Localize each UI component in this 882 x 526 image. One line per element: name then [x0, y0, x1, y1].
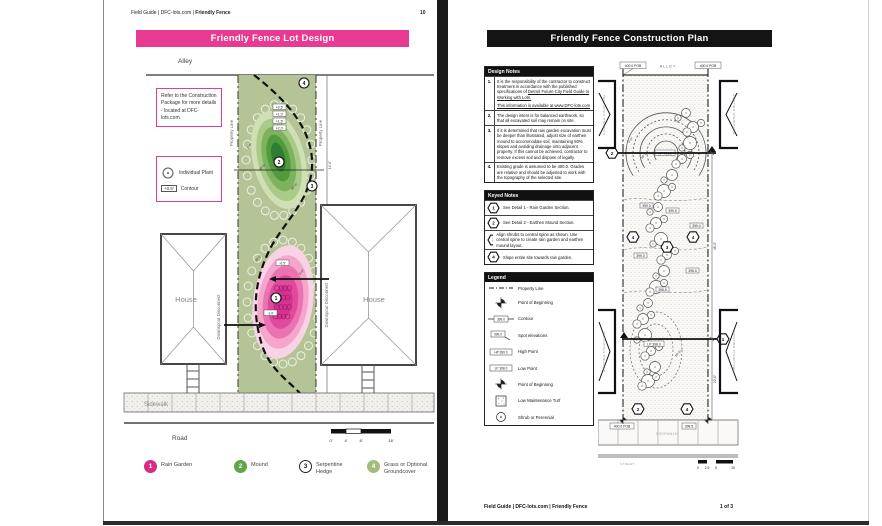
svg-text:400.0 POB: 400.0 POB — [614, 424, 631, 428]
existing-structure-label: EXISTING STRUCTURE — [732, 331, 736, 372]
legend-item-serpentine-hedge: 3 Serpentine Hedge — [299, 460, 352, 476]
legend-item-mound: 2 Mound — [234, 460, 285, 473]
individual-plant-icon — [161, 166, 175, 180]
legend-row-point-of-beginning-2: Point of Beginning — [485, 376, 593, 392]
svg-text:1: 1 — [275, 296, 278, 302]
svg-text:2: 2 — [611, 151, 614, 156]
page-lot-design: Field Guide | DFC-lots.com | Friendly Fe… — [103, 0, 437, 521]
dfc-lots-link[interactable]: This information is available at www.DFC… — [497, 103, 591, 108]
legend-badge: 1 — [144, 460, 157, 473]
marker-rain-garden: 1 — [271, 293, 281, 303]
hex-marker-4b: 4 — [687, 232, 699, 242]
legend-row-spot-elevations: 399.0 Spot elevations — [485, 327, 593, 343]
svg-text:10: 10 — [731, 466, 735, 470]
svg-text:1: 1 — [722, 337, 725, 342]
low-maintenance-turf-icon — [488, 395, 514, 407]
leader-line — [623, 69, 633, 76]
svg-text:2: 2 — [278, 160, 281, 166]
svg-text:398.5: 398.5 — [685, 424, 694, 428]
svg-text:398.5: 398.5 — [658, 288, 667, 292]
hex-marker-4c: 4 — [681, 404, 693, 414]
design-note: 1. It is the responsibility of the contr… — [485, 76, 593, 110]
footer-page-number: 1 of 3 — [720, 504, 733, 510]
svg-text:22'-0": 22'-0" — [713, 375, 717, 383]
low-point-icon: LP 398.0 — [488, 362, 514, 374]
svg-text:399.0: 399.0 — [636, 254, 645, 258]
svg-text:+1.0': +1.0' — [276, 112, 284, 116]
legend-row-contour: 399.0 Contour — [485, 311, 593, 327]
scale-bar: 0' 4' 8' 16' — [330, 429, 394, 443]
hex-marker-2: 2 — [606, 148, 618, 158]
keyed-note-hex-icon: 1 — [487, 202, 500, 214]
svg-text:2.5: 2.5 — [705, 466, 710, 470]
shrub-icon — [488, 411, 514, 423]
marker-mound: 2 — [274, 157, 284, 167]
contour-icon: 399.0 — [488, 313, 514, 325]
svg-text:+0.5': +0.5' — [276, 105, 284, 109]
keyed-note-hex-icon: 4 — [487, 251, 500, 263]
alley-label: Alley — [178, 58, 193, 65]
page-number: 10 — [420, 10, 426, 16]
page-construction-plan: Friendly Fence Construction Plan Design … — [448, 0, 869, 521]
svg-text:LP 398.0: LP 398.0 — [647, 342, 661, 346]
street-band — [598, 454, 738, 458]
svg-text:4: 4 — [692, 235, 695, 240]
keyed-note: 3 Align shrubs to central spine as shown… — [485, 230, 593, 249]
svg-text:1: 1 — [492, 206, 495, 211]
key-plant-label: Individual Plant — [179, 170, 213, 176]
svg-text:4: 4 — [492, 255, 495, 260]
key-individual-plant: Individual Plant — [161, 166, 217, 180]
downspout-label: Downspout Disconnect — [324, 282, 329, 328]
svg-text:400.0 POB: 400.0 POB — [625, 64, 642, 68]
legend-row-point-of-beginning: Point of Beginning — [485, 294, 593, 310]
legend-badge: 2 — [234, 460, 247, 473]
keyed-note: 2 See Detail 2 - Earthen Mound Section. — [485, 215, 593, 230]
keyed-note: 1 See Detail 1 - Rain Garden Section. — [485, 200, 593, 215]
svg-text:399.5: 399.5 — [642, 204, 651, 208]
svg-text:-0.5': -0.5' — [279, 261, 286, 265]
svg-text:LP 398.0: LP 398.0 — [495, 367, 508, 371]
key-contour-label: Contour — [181, 186, 199, 192]
svg-text:48'-0": 48'-0" — [713, 242, 717, 250]
hex-marker-4: 4 — [627, 232, 639, 242]
downspout-label: Downspout Disconnect — [216, 294, 221, 340]
construction-plan-drawing: 400.0 POB 400.0 POB ALLEY — [598, 55, 828, 475]
contour-tag-icon: +0.5' — [161, 185, 177, 192]
keyed-notes-header: Keyed Notes — [485, 191, 593, 200]
property-line-label: Property Line — [229, 119, 234, 146]
existing-structure-label: EXISTING STRUCTURE — [602, 331, 606, 372]
legend-box: Legend Property Line Point of Beginning … — [484, 272, 594, 426]
design-note: 2. The design intent is for balanced ear… — [485, 110, 593, 125]
page-gutter — [437, 0, 448, 521]
hex-marker-1: 1 — [717, 334, 729, 344]
svg-text:3: 3 — [311, 184, 314, 190]
street-label: STREET — [620, 462, 635, 466]
property-line-icon — [488, 284, 514, 292]
walkway-right — [362, 365, 374, 393]
svg-text:+2.0': +2.0' — [276, 126, 284, 130]
svg-text:398.5: 398.5 — [688, 269, 697, 273]
page-title: Friendly Fence Construction Plan — [487, 30, 772, 47]
legend-row-property-line: Property Line — [485, 282, 593, 294]
legend-row-low-point: LP 398.0 Low Point — [485, 360, 593, 376]
spot-elevation-icon: 399.0 — [488, 329, 514, 341]
page-title: Friendly Fence Lot Design — [136, 30, 409, 47]
sidewalk-label: Sidewalk — [144, 402, 169, 408]
point-of-beginning-icon — [488, 378, 514, 390]
svg-text:3: 3 — [492, 238, 493, 243]
keyed-note-hex-icon: 3 — [487, 234, 493, 246]
plan-key-box: Individual Plant +0.5' Contour — [156, 156, 222, 202]
svg-text:4: 4 — [632, 235, 635, 240]
svg-text:HP 399.0: HP 399.0 — [494, 350, 507, 354]
svg-text:0': 0' — [330, 438, 333, 443]
page-bottom-shadow — [103, 521, 869, 525]
svg-text:4': 4' — [345, 438, 348, 443]
svg-text:5: 5 — [715, 466, 717, 470]
svg-text:399.0: 399.0 — [494, 333, 502, 337]
sidewalk-label: SIDEWALK — [656, 432, 678, 436]
design-notes-header: Design Notes — [485, 67, 593, 76]
legend-row-high-point: HP 399.0 High Point — [485, 344, 593, 360]
scale-bar: 0 2.5 5 10 — [697, 460, 735, 470]
key-contour: +0.5' Contour — [161, 185, 217, 192]
svg-text:8': 8' — [360, 438, 363, 443]
svg-text:4: 4 — [686, 407, 689, 412]
keyed-note-hex-icon: 2 — [487, 217, 500, 229]
road-label: Road — [172, 435, 188, 442]
legend-header: Legend — [485, 273, 593, 282]
dimension-right: 48'-0" 22'-0" — [710, 151, 717, 422]
legend-badge: 3 — [299, 460, 312, 473]
design-note: 3. If it is determined that rain garden … — [485, 125, 593, 162]
footer-breadcrumb: Field Guide | DFC-lots.com | Friendly Fe… — [484, 504, 587, 510]
keyed-notes-box: Keyed Notes 1 See Detail 1 - Rain Garden… — [484, 190, 594, 265]
dim-label: 14'-0" — [328, 161, 332, 169]
sidewalk — [124, 393, 434, 412]
design-note: 4. Existing grade is assumed to be 400.0… — [485, 162, 593, 182]
svg-text:2: 2 — [637, 407, 640, 412]
legend-item-rain-garden: 1 Rain Garden — [144, 460, 205, 473]
house-label: House — [175, 295, 197, 304]
existing-structure-label: EXISTING STRUCTURE — [602, 94, 606, 135]
point-of-beginning-icon — [488, 297, 514, 309]
design-notes-box: Design Notes 1. It is the responsibility… — [484, 66, 594, 183]
svg-text:399.5: 399.5 — [668, 209, 677, 213]
svg-text:-1.0': -1.0' — [267, 311, 274, 315]
hex-marker-3: 3 — [661, 242, 673, 252]
existing-structure-label: EXISTING STRUCTURE — [732, 94, 736, 135]
svg-text:3: 3 — [666, 245, 669, 250]
hex-marker-2b: 2 — [632, 404, 644, 414]
svg-text:2: 2 — [492, 221, 495, 226]
house-label: House — [363, 295, 385, 304]
svg-text:400.0 POB: 400.0 POB — [700, 64, 717, 68]
svg-text:0: 0 — [697, 466, 699, 470]
svg-text:4: 4 — [303, 81, 306, 87]
high-point-icon: HP 399.0 — [488, 346, 514, 358]
property-line-label: Property Line — [318, 119, 323, 146]
house-right: House Downspout Disconnect — [321, 205, 416, 365]
svg-text:16': 16' — [388, 438, 393, 443]
legend-item-grass: 4 Grass or Optional Groundcover — [367, 460, 436, 476]
walkway-left — [187, 364, 199, 393]
legend-row-turf: Low Maintenance Turf — [485, 393, 593, 409]
svg-text:+1.5': +1.5' — [276, 119, 284, 123]
alley-label: ALLEY — [660, 65, 677, 69]
marker-grass: 4 — [299, 78, 309, 88]
house-left: House Downspout Disconnect — [161, 234, 226, 364]
keyed-note: 4 Slope entire site towards rain garden. — [485, 249, 593, 264]
svg-text:399.0: 399.0 — [692, 224, 701, 228]
legend-badge: 4 — [367, 460, 380, 473]
construction-note-box: Refer to the Construction Package for mo… — [156, 88, 222, 127]
legend-row-shrub: Shrub or Perennial — [485, 409, 593, 425]
svg-text:399.0: 399.0 — [497, 317, 505, 321]
marker-hedge: 3 — [307, 181, 317, 191]
breadcrumb: Field Guide | DFC-lots.com | Friendly Fe… — [131, 10, 231, 16]
